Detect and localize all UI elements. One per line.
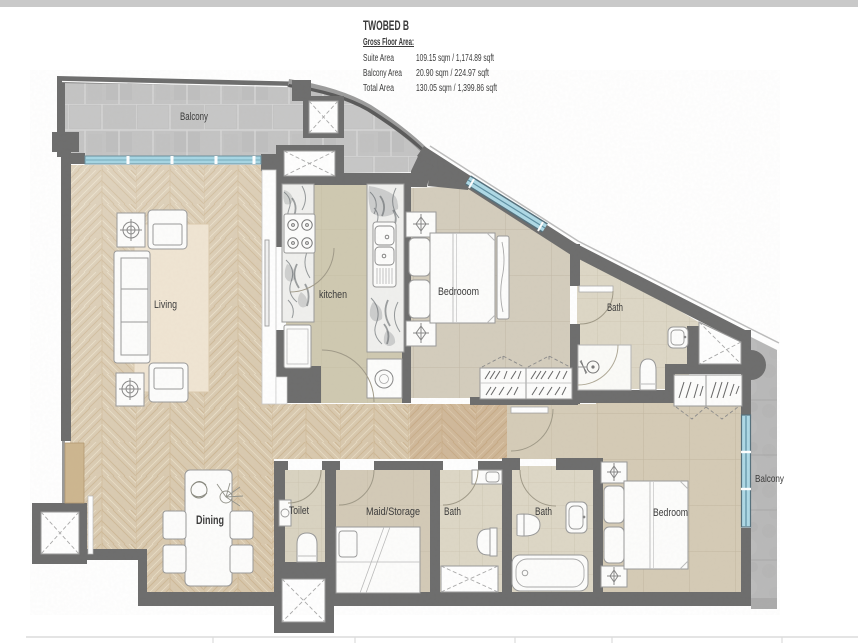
- svg-text:Gross Floor Area:: Gross Floor Area:: [363, 37, 414, 48]
- svg-text:TWOBED B: TWOBED B: [363, 17, 409, 33]
- svg-text:Suite Area: Suite Area: [363, 53, 394, 64]
- svg-text:109.15 sqm / 1,174.89 sqft: 109.15 sqm / 1,174.89 sqft: [416, 53, 494, 64]
